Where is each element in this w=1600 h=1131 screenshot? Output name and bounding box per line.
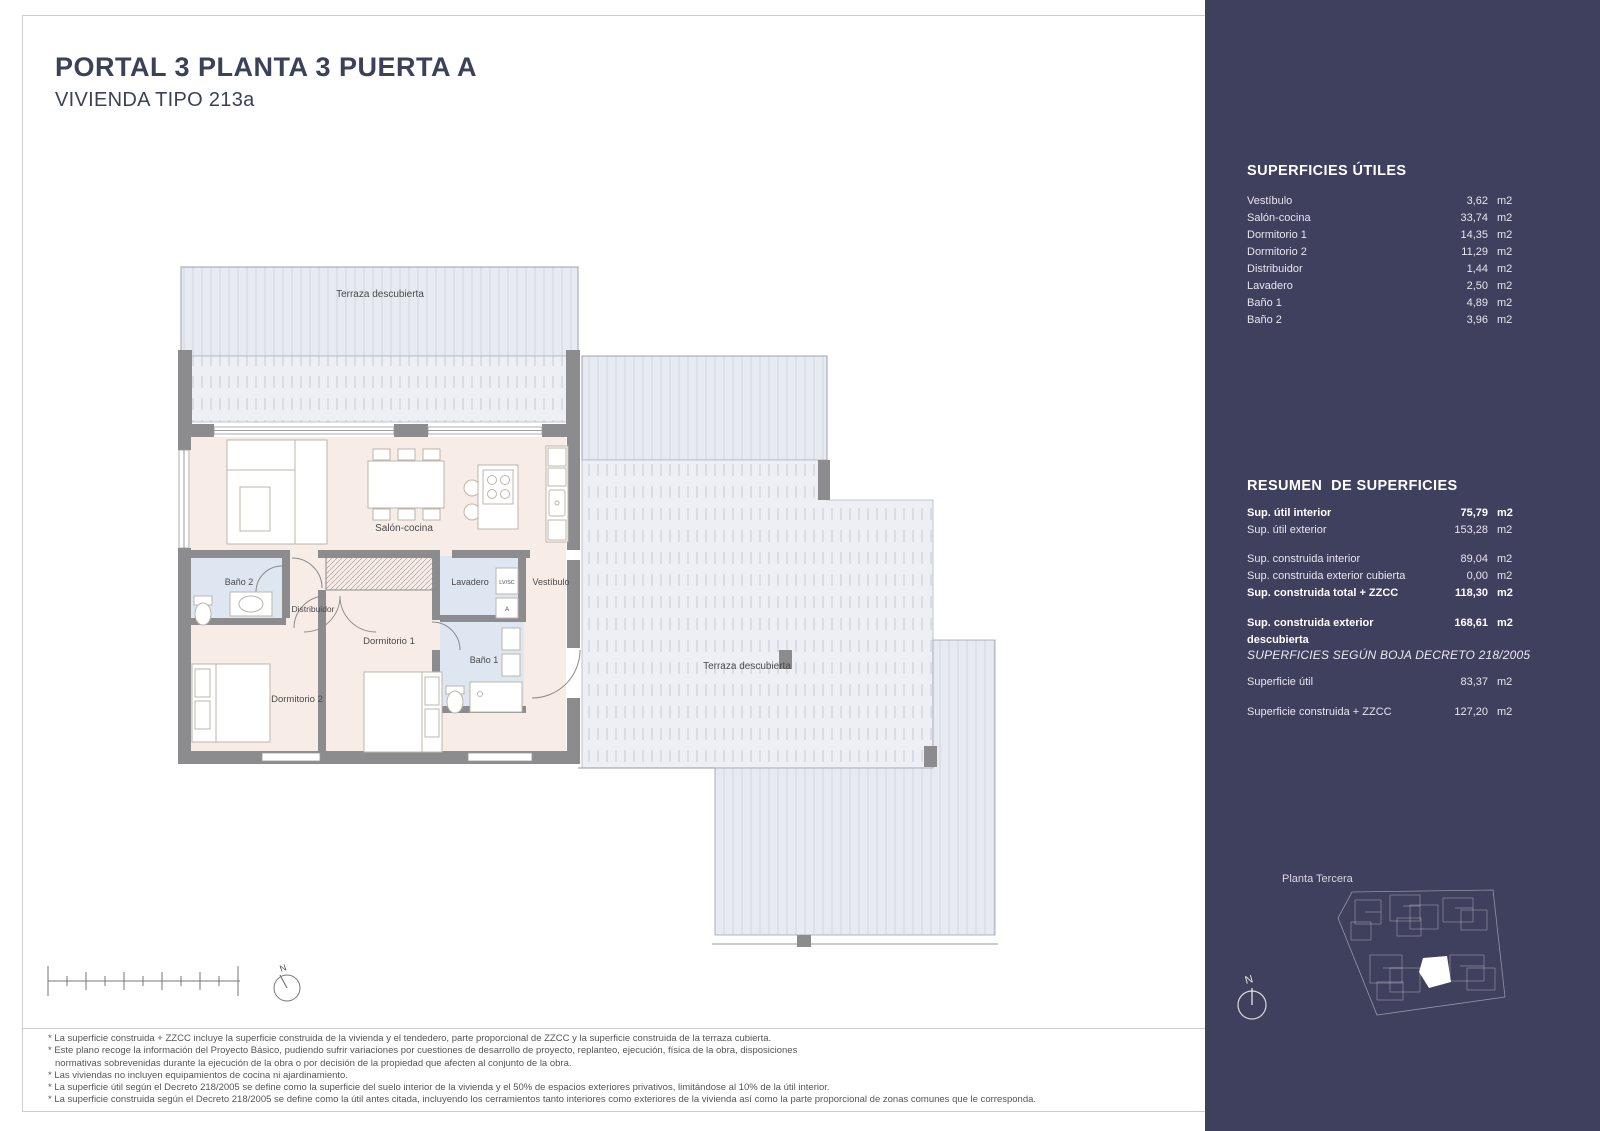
table-row: Baño 23,96m2 [1247,312,1519,329]
site-plan-label: Planta Tercera [1282,873,1354,885]
site-plan-key: Planta Tercera N [1205,840,1600,1070]
scale-bar [48,966,240,996]
table-row: Sup. construida total + ZZCC118,30m2 [1247,585,1519,602]
summary-sidebar: SUPERFICIES ÚTILES Vestíbulo3,62m2 Salón… [1205,0,1600,1131]
floor-plan: Terraza descubierta Salón-cocina Baño 2 … [0,0,1205,1010]
table-row: Superficie útil83,37m2 [1247,674,1519,691]
room-label-lavadero: Lavadero [451,577,489,587]
svg-text:N: N [1244,973,1255,987]
superficies-utiles-section: SUPERFICIES ÚTILES Vestíbulo3,62m2 Salón… [1247,163,1519,329]
resumen-title: RESUMEN DE SUPERFICIES [1247,478,1519,494]
footnote-line: * La superficie útil según el Decreto 21… [48,1082,1178,1094]
table-row: Dormitorio 114,35m2 [1247,227,1519,244]
footnote-line: * Este plano recoge la información del P… [48,1045,1178,1057]
plan-sheet: PORTAL 3 PLANTA 3 PUERTA A VIVIENDA TIPO… [0,0,1600,1131]
room-label-terraza-right: Terraza descubierta [703,661,791,672]
table-row: Sup. construida interior89,04m2 [1247,551,1519,568]
table-row: Salón-cocina33,74m2 [1247,210,1519,227]
terrace-right [578,356,998,947]
boja-title: SUPERFICIES SEGÚN BOJA DECRETO 218/2005 [1247,648,1519,662]
footnote-line: * Las viviendas no incluyen equipamiento… [48,1070,1178,1082]
room-label-terraza-top: Terraza descubierta [336,289,424,300]
table-row: Sup. útil exterior153,28m2 [1247,522,1519,539]
table-row: Lavadero2,50m2 [1247,278,1519,295]
site-highlighted-unit [1419,956,1451,988]
resumen-section: RESUMEN DE SUPERFICIES Sup. útil interio… [1247,478,1519,649]
site-buildings [1351,895,1495,1000]
footnotes: * La superficie construida + ZZCC incluy… [48,1033,1178,1107]
room-label-dormitorio2: Dormitorio 2 [271,694,323,705]
site-north-arrow-icon: N [1238,973,1266,1019]
svg-text:N: N [278,962,288,974]
appliance-label-boiler: A [505,607,509,613]
room-label-dormitorio1: Dormitorio 1 [363,636,415,647]
room-label-bano2: Baño 2 [225,577,254,587]
superficies-utiles-title: SUPERFICIES ÚTILES [1247,163,1519,179]
table-row: Baño 14,89m2 [1247,295,1519,312]
room-label-vestibulo: Vestíbulo [532,577,569,587]
footnote-divider [22,1028,1412,1029]
footnote-line: * La superficie construida + ZZCC incluy… [48,1033,1178,1045]
table-row: Sup. construida exterior descubierta168,… [1247,615,1519,649]
wardrobe [326,556,436,590]
table-row: Dormitorio 211,29m2 [1247,244,1519,261]
table-row: Superficie construida + ZZCC127,20m2 [1247,704,1519,721]
table-row: Sup. construida exterior cubierta0,00m2 [1247,568,1519,585]
footnote-line: * La superficie construida según el Decr… [48,1094,1178,1106]
footnote-line: normativas sobrevenidas durante la ejecu… [48,1058,1178,1070]
table-row: Distribuidor1,44m2 [1247,261,1519,278]
room-label-distribuidor: Distribuidor [292,604,335,614]
appliance-label-washer: LV/SC [499,580,515,586]
room-label-salon: Salón-cocina [375,523,433,534]
north-arrow-icon: N [274,962,300,1001]
table-row: Sup. útil interior75,79m2 [1247,505,1519,522]
boja-section: SUPERFICIES SEGÚN BOJA DECRETO 218/2005 … [1247,648,1519,721]
table-row: Vestíbulo3,62m2 [1247,193,1519,210]
room-label-bano1: Baño 1 [470,655,499,665]
